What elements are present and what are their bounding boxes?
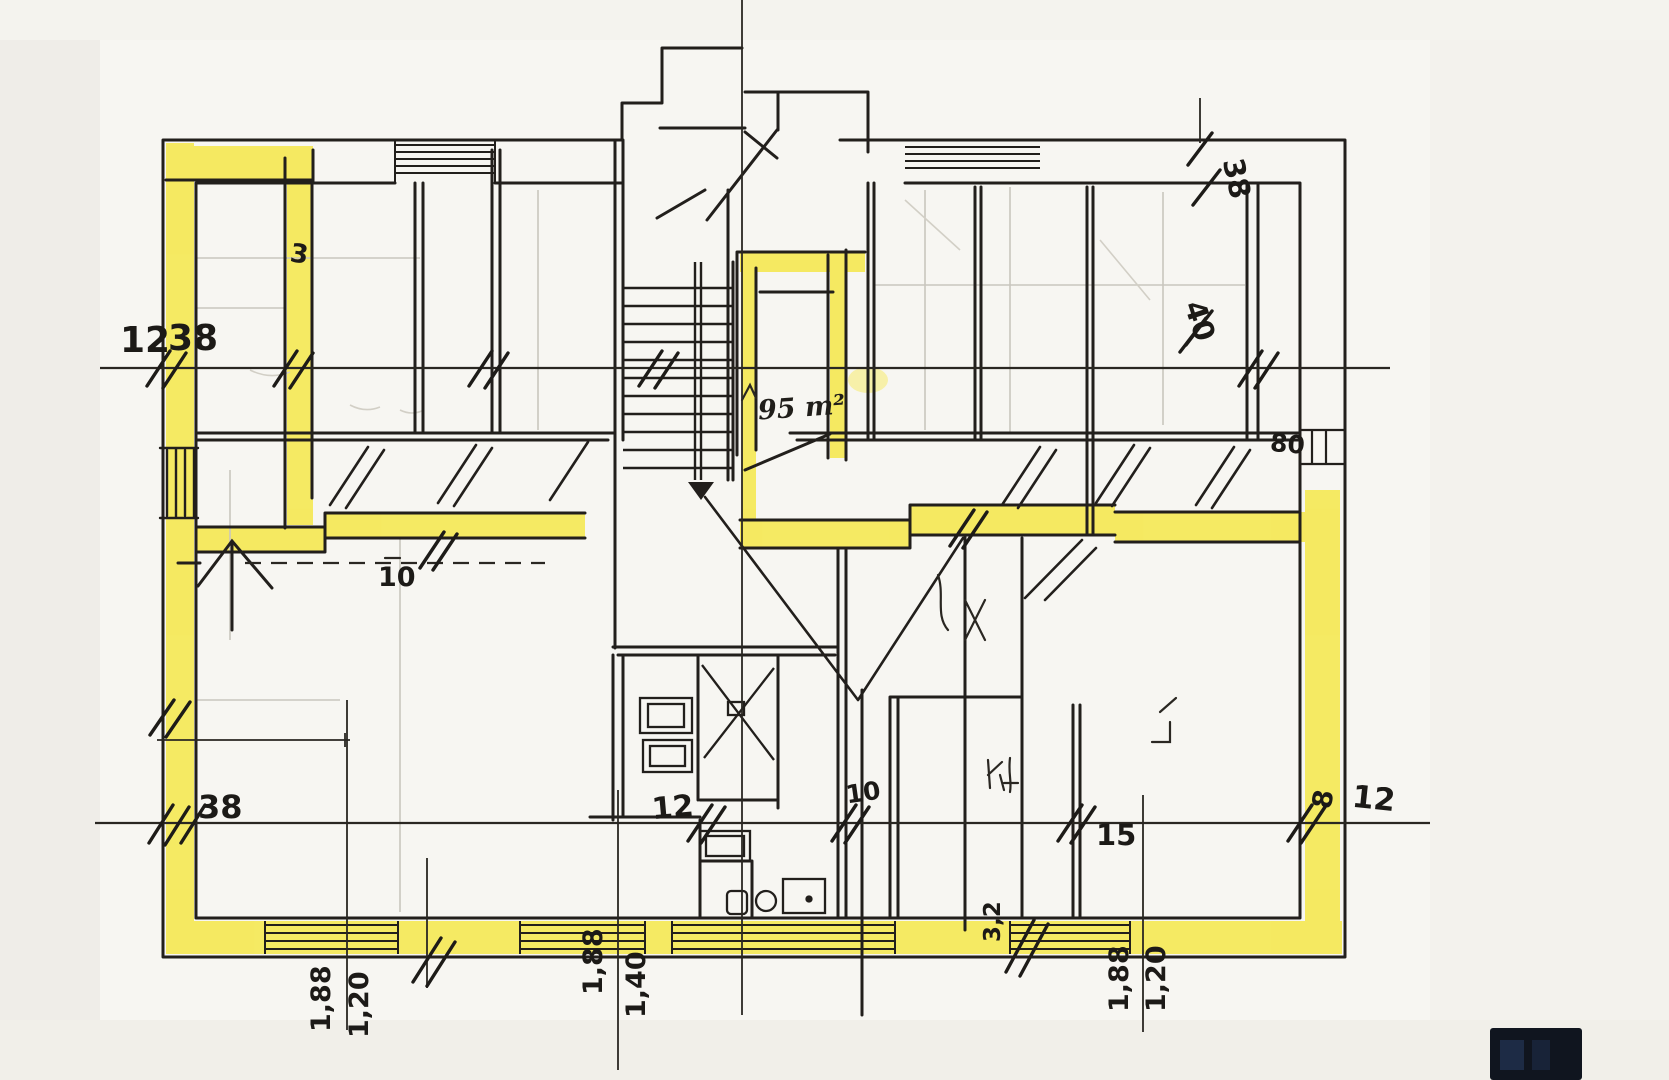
label-meas-right-a: 1,88: [1104, 945, 1135, 1012]
label-meas-wall-32: 3,2: [980, 901, 1006, 942]
paper-bottom-shadow: [0, 1020, 1669, 1080]
watermark-detail-2: [1532, 1040, 1550, 1070]
label-meas-center-b: 1,40: [621, 951, 652, 1018]
label-bottom-15: 15: [1096, 818, 1136, 852]
highlight-corridor-3: [740, 520, 910, 548]
watermark: [1490, 1028, 1582, 1080]
paper-right-shadow: [1430, 0, 1669, 1080]
label-upper-left-12: 12: [120, 320, 170, 361]
label-bottom-10: 10: [844, 776, 882, 810]
highlight-interior-wall-a: [287, 155, 313, 525]
highlight-stair-room-right: [830, 268, 846, 458]
label-bottom-right-12: 12: [1350, 779, 1397, 819]
label-corridor-10: 10: [378, 562, 416, 593]
highlight-left-wall: [166, 143, 194, 954]
label-stair-area: 95 m²: [757, 389, 846, 426]
watermark-detail-1: [1500, 1040, 1524, 1070]
label-meas-left-a: 1,88: [306, 965, 337, 1032]
highlight-corridor-4: [910, 505, 1115, 535]
label-meas-center-a: 1,88: [578, 928, 609, 995]
sink-drain: [807, 897, 812, 902]
label-right-80: 80: [1269, 428, 1306, 460]
label-bottom-left-38: 38: [198, 788, 243, 826]
label-meas-right-b: 1,20: [1141, 945, 1172, 1012]
label-meas-left-b: 1,20: [344, 971, 375, 1038]
highlight-corridor-1: [196, 527, 325, 552]
label-bottom-12: 12: [650, 789, 695, 828]
floor-plan-canvas: 12 38 3 95 m² 10 38 12 10 15 8 12 38 40 …: [0, 0, 1669, 1080]
paper-top-shadow: [0, 0, 1669, 40]
scanned-floor-plan-page: 12 38 3 95 m² 10 38 12 10 15 8 12 38 40 …: [0, 0, 1669, 1080]
label-upper-left-38: 38: [168, 318, 218, 359]
highlight-right-wall: [1305, 490, 1340, 954]
paper-left-shadow: [0, 0, 100, 1080]
highlight-corridor-5: [1115, 512, 1305, 542]
